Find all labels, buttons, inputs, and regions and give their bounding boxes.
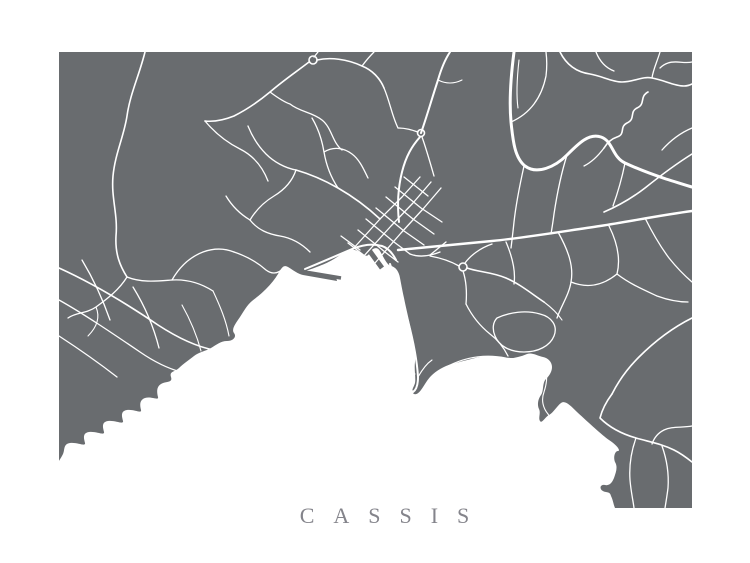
map-title: CASSIS (0, 501, 750, 531)
map-poster: CASSIS (0, 0, 750, 563)
cassis-street-map (0, 0, 750, 563)
